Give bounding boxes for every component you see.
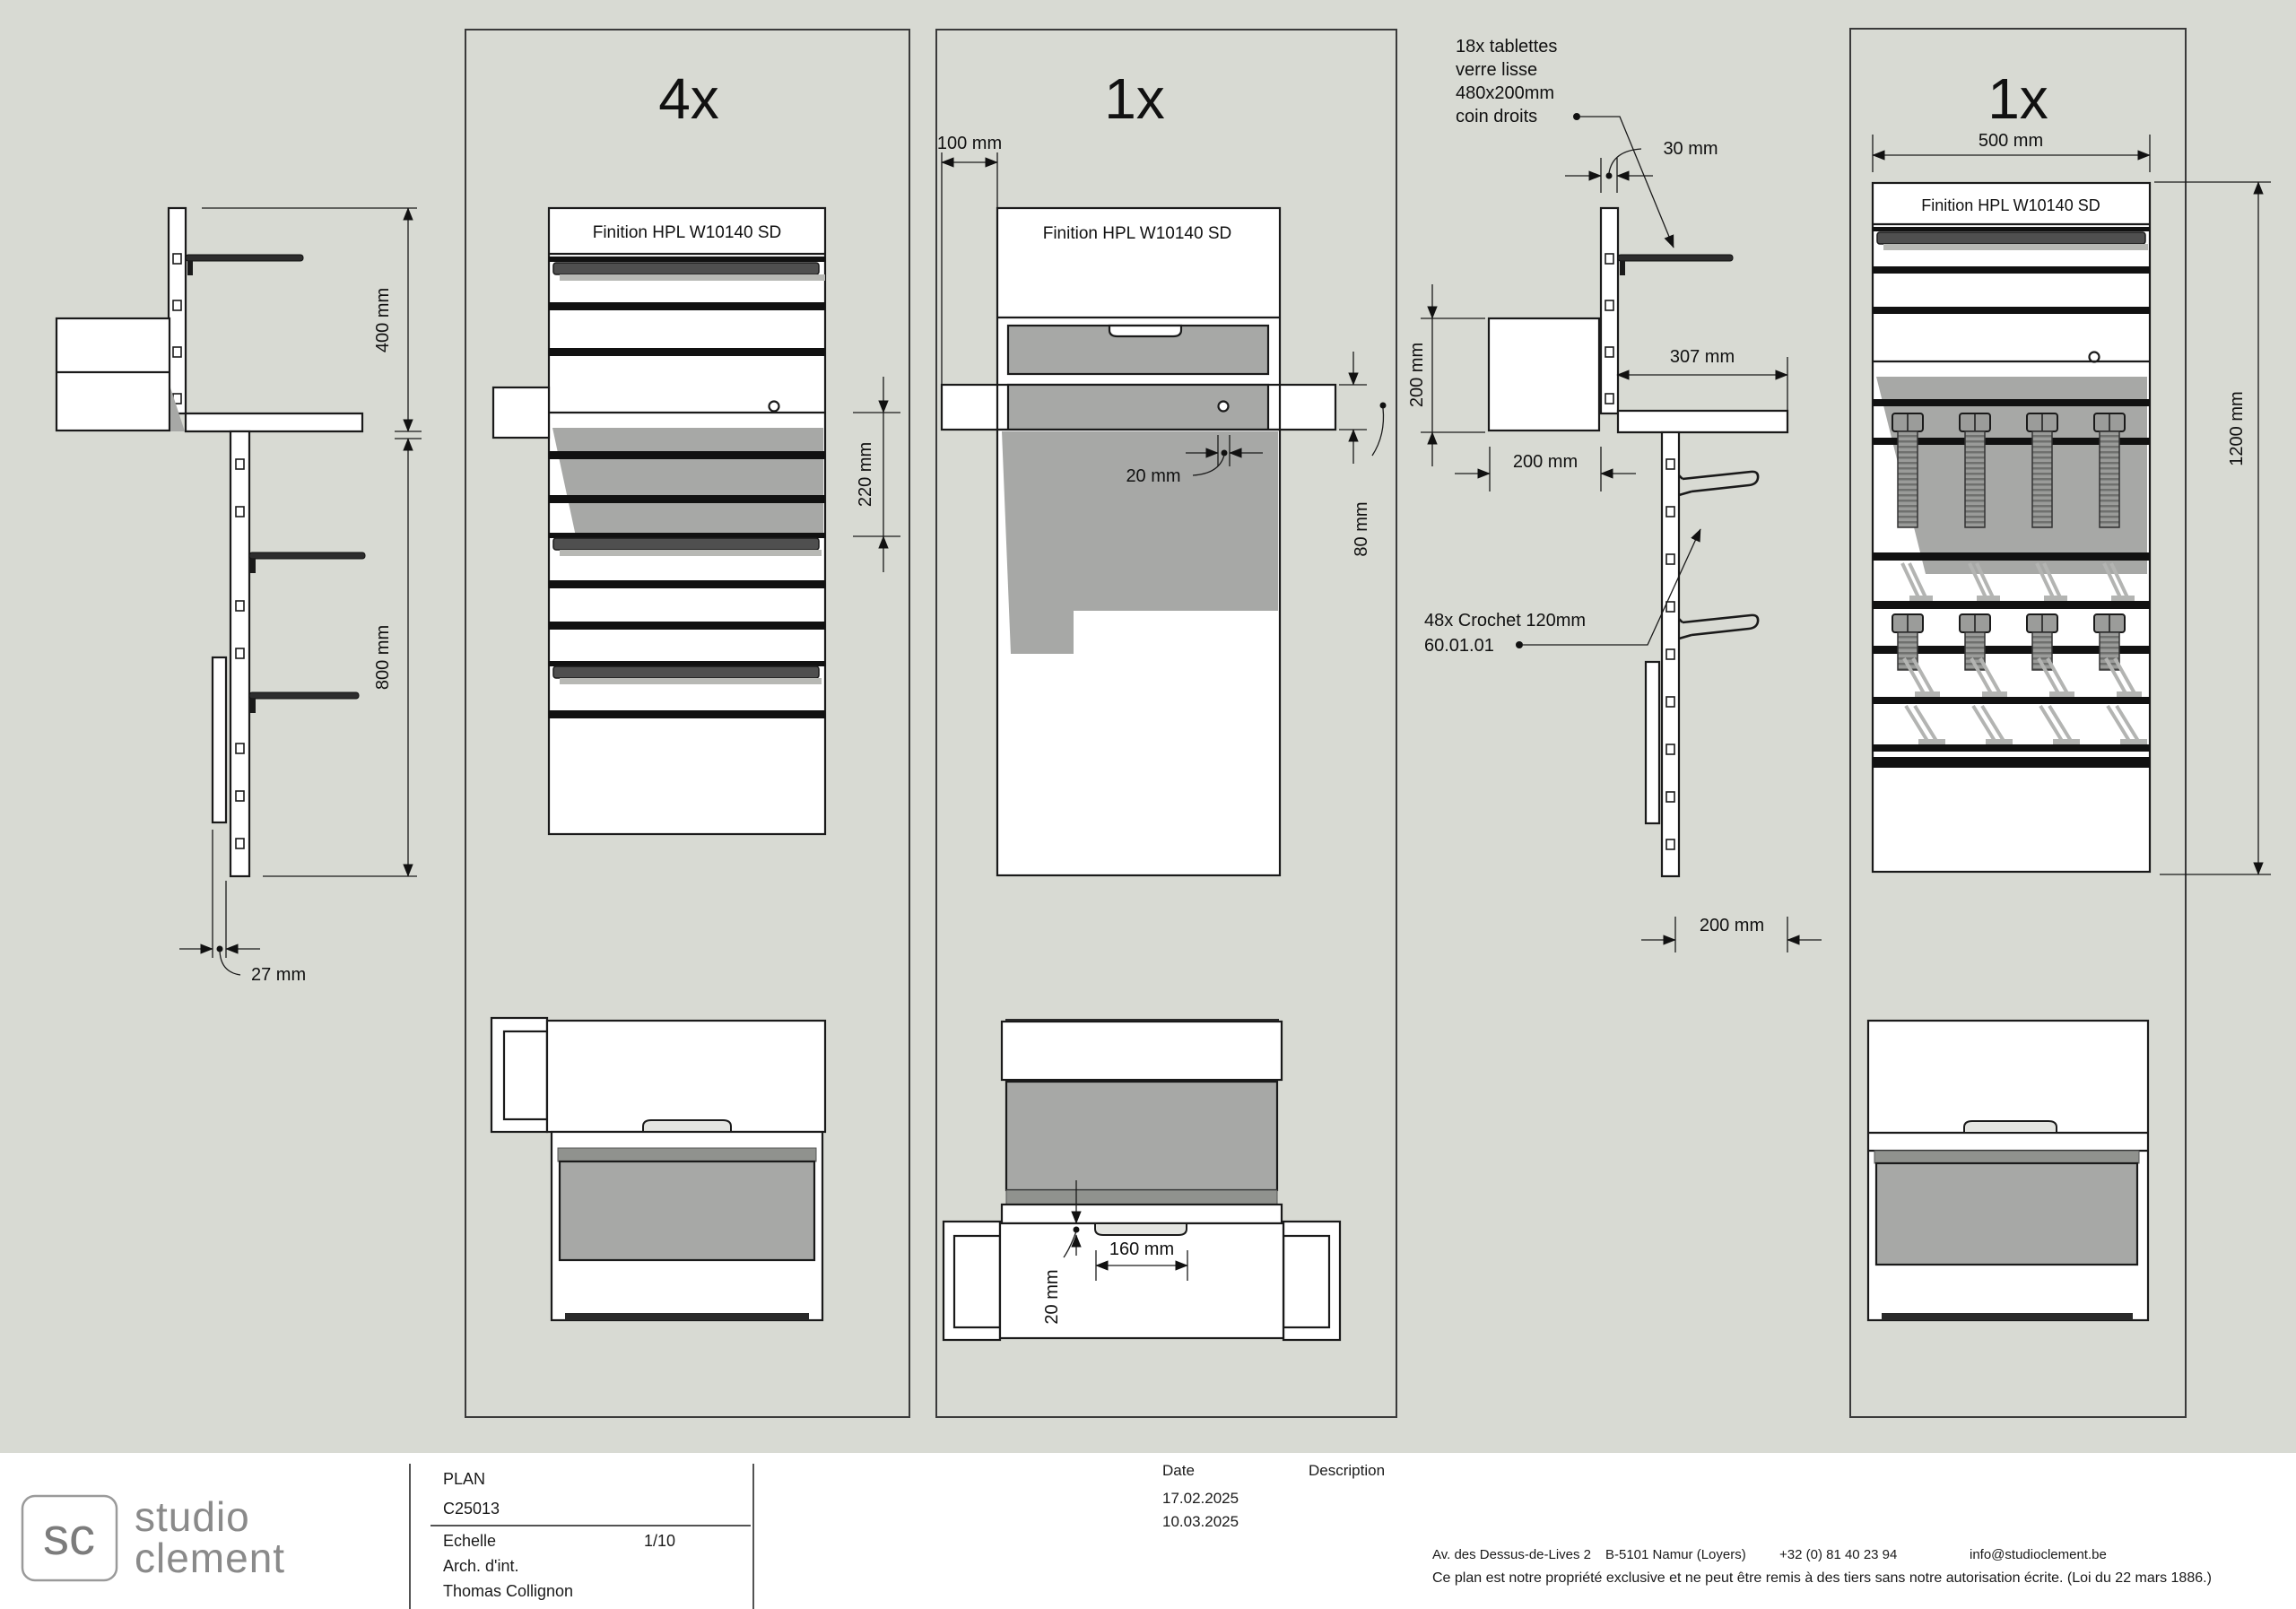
panel-4x-count: 4x: [658, 66, 719, 131]
address-city: B-5101 Namur (Loyers): [1605, 1547, 1746, 1562]
svg-text:verre lisse: verre lisse: [1456, 60, 1537, 80]
date-1: 17.02.2025: [1162, 1490, 1239, 1507]
address-street: Av. des Dessus-de-Lives 2: [1432, 1547, 1591, 1562]
date-label: Date: [1162, 1462, 1195, 1479]
dim-20mm-notch: 20 mm: [1042, 1269, 1062, 1324]
panel-right-count: 1x: [1987, 66, 2048, 131]
dim-400mm: 400 mm: [373, 288, 393, 352]
author: Thomas Collignon: [443, 1582, 573, 1600]
phone: +32 (0) 81 40 23 94: [1779, 1547, 1897, 1562]
doc-type: PLAN: [443, 1470, 485, 1488]
dim-30mm: 30 mm: [1663, 139, 1718, 159]
title-block: sc studio clement PLAN C25013 Echelle 1/…: [22, 1462, 2212, 1609]
scale-label: Echelle: [443, 1532, 496, 1550]
role: Arch. d'int.: [443, 1557, 518, 1575]
left-wing-tab: [493, 387, 549, 438]
project-code: C25013: [443, 1500, 500, 1518]
date-2: 10.03.2025: [1162, 1513, 1239, 1530]
dim-20mm-hole: 20 mm: [1126, 466, 1180, 486]
logo-mark: sc: [43, 1508, 95, 1566]
dim-500mm: 500 mm: [1979, 131, 2043, 151]
dim-200mm-h: 200 mm: [1513, 452, 1578, 472]
dim-100mm: 100 mm: [937, 134, 1002, 153]
dim-200mm-v: 200 mm: [1407, 343, 1427, 407]
hooks-counter-arm: [1618, 411, 1787, 432]
finition-label-mid: Finition HPL W10140 SD: [1043, 224, 1232, 243]
finition-label-right: Finition HPL W10140 SD: [1921, 196, 2100, 214]
scale-value: 1/10: [644, 1532, 675, 1550]
plan-sheet: 400 mm 800 mm: [0, 0, 2296, 1609]
hooks-back-panel: [1646, 662, 1659, 823]
finition-label: Finition HPL W10140 SD: [593, 223, 782, 242]
svg-text:coin droits: coin droits: [1456, 107, 1537, 126]
panel-right-bottom-view: [1868, 1021, 2148, 1320]
legal-notice: Ce plan est notre propriété exclusive et…: [1432, 1570, 2212, 1586]
hole-mid: [1219, 402, 1229, 412]
dim-1200mm: 1200 mm: [2227, 391, 2247, 465]
hole-right: [2090, 352, 2100, 362]
technical-drawing: 400 mm 800 mm: [0, 0, 2296, 1609]
dim-800mm: 800 mm: [373, 625, 393, 690]
svg-text:48x Crochet 120mm: 48x Crochet 120mm: [1424, 611, 1586, 631]
dim-80mm: 80 mm: [1352, 501, 1371, 556]
hole: [770, 402, 779, 412]
back-panel-27mm: [213, 657, 226, 822]
logo-name-1: studio: [135, 1493, 250, 1540]
panel-mid-count: 1x: [1104, 66, 1165, 131]
description-label: Description: [1309, 1462, 1385, 1479]
email: info@studioclement.be: [1970, 1547, 2107, 1562]
dim-200mm-b: 200 mm: [1700, 916, 1764, 935]
counter-box: [57, 318, 170, 431]
svg-text:18x tablettes: 18x tablettes: [1456, 37, 1557, 57]
dim-220mm: 220 mm: [856, 442, 875, 507]
logo-name-2: clement: [135, 1535, 285, 1581]
dim-307mm: 307 mm: [1670, 347, 1735, 367]
counter-arm: [186, 413, 362, 431]
dim-27mm: 27 mm: [251, 965, 306, 985]
svg-text:60.01.01: 60.01.01: [1424, 636, 1494, 656]
svg-text:480x200mm: 480x200mm: [1456, 83, 1554, 103]
glass-shelf-side: [186, 255, 303, 261]
dim-160mm: 160 mm: [1109, 1239, 1174, 1259]
hooks-counter-box: [1489, 318, 1599, 431]
